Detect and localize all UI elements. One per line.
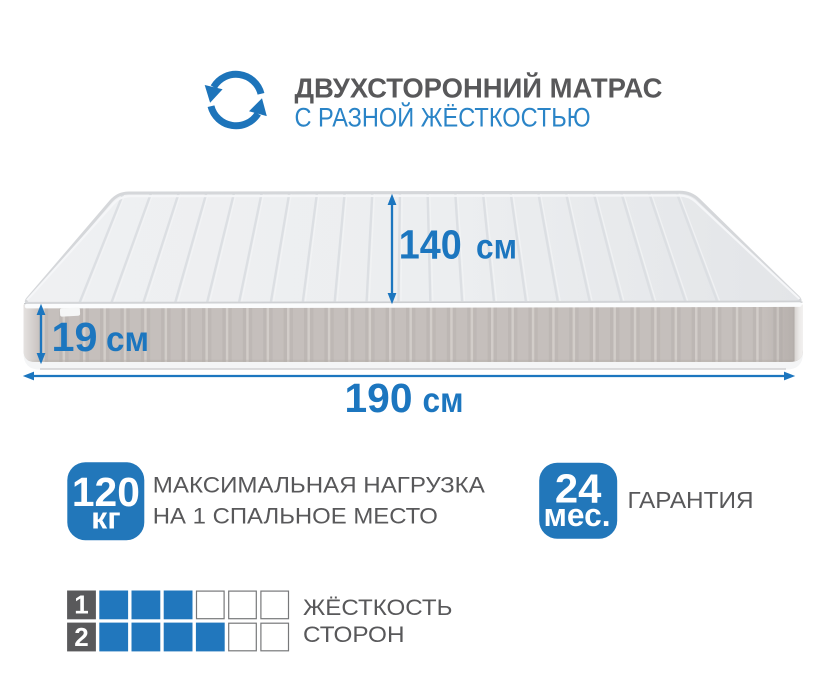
svg-text:1: 1 (74, 590, 88, 620)
svg-text:см: см (106, 320, 149, 359)
svg-text:МАКСИМАЛЬНАЯ НАГРУЗКА: МАКСИМАЛЬНАЯ НАГРУЗКА (153, 472, 485, 497)
svg-text:ГАРАНТИЯ: ГАРАНТИЯ (628, 487, 754, 513)
svg-text:НА 1 СПАЛЬНОЕ МЕСТО: НА 1 СПАЛЬНОЕ МЕСТО (153, 504, 438, 529)
svg-text:см: см (476, 228, 517, 267)
svg-text:19: 19 (52, 314, 98, 360)
svg-text:190: 190 (345, 375, 413, 421)
svg-text:см: см (423, 381, 464, 420)
svg-text:2: 2 (74, 622, 88, 652)
svg-text:ЖЁСТКОСТЬ: ЖЁСТКОСТЬ (303, 595, 453, 620)
svg-text:140: 140 (399, 222, 462, 268)
svg-text:СТОРОН: СТОРОН (303, 622, 405, 647)
svg-text:ДВУХСТОРОННИЙ МАТРАС: ДВУХСТОРОННИЙ МАТРАС (295, 71, 663, 103)
svg-text:кг: кг (91, 501, 121, 536)
svg-text:С РАЗНОЙ ЖЁСТКОСТЬЮ: С РАЗНОЙ ЖЁСТКОСТЬЮ (295, 103, 591, 133)
svg-text:мес.: мес. (544, 497, 611, 533)
